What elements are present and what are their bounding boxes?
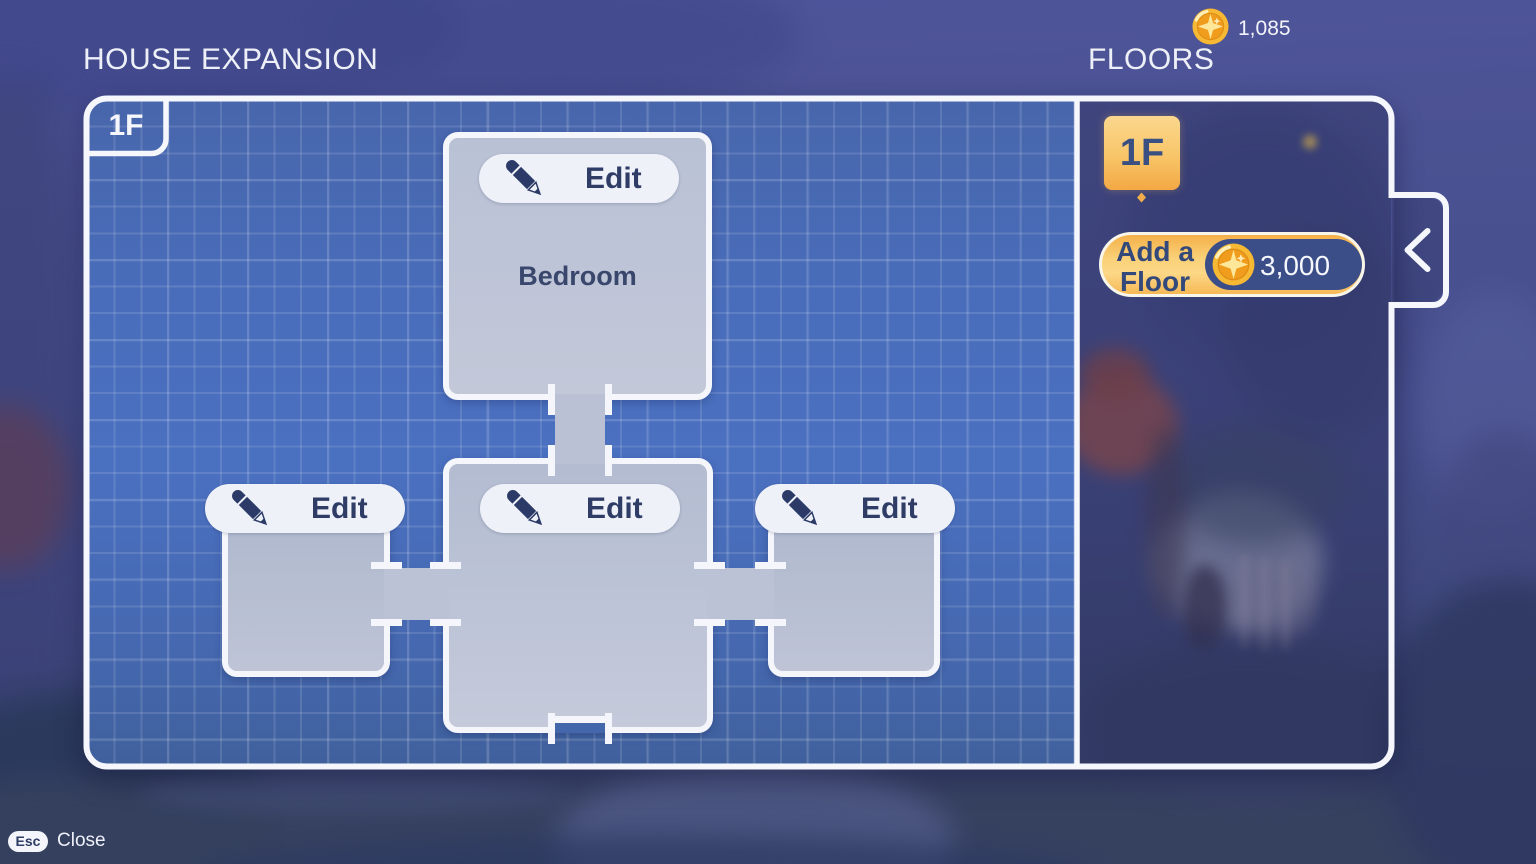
svg-text:1F: 1F <box>108 109 143 142</box>
